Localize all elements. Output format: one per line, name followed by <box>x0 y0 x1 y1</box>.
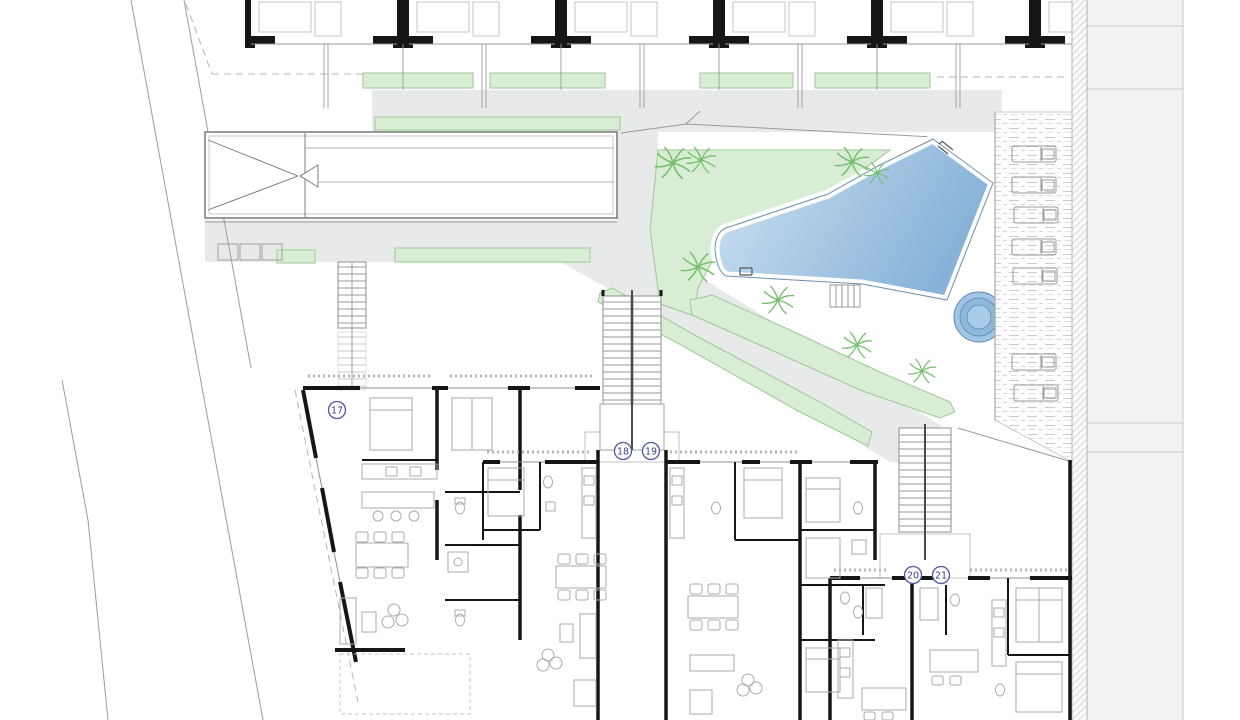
unit-17-furniture <box>340 398 492 644</box>
svg-text:18: 18 <box>617 446 629 457</box>
pool-steps <box>830 285 860 307</box>
svg-text:21: 21 <box>935 570 947 581</box>
site-plan-drawing: 1718192021 <box>0 0 1240 720</box>
unit-21-furniture <box>920 588 1062 712</box>
staircase-left <box>338 262 366 390</box>
svg-text:19: 19 <box>645 446 657 457</box>
palm-tree <box>842 332 872 358</box>
svg-text:20: 20 <box>907 570 919 581</box>
unit-label-21: 21 <box>933 567 950 584</box>
palm-tree <box>762 286 794 314</box>
unit-19-furniture <box>670 468 782 714</box>
unit-label-19: 19 <box>643 443 660 460</box>
palm-tree <box>908 359 936 383</box>
unit-label-17: 17 <box>329 402 346 419</box>
site-plan-canvas: 1718192021 <box>0 0 1240 720</box>
terrace-unit17 <box>340 654 470 714</box>
unit-label-18: 18 <box>615 443 632 460</box>
unit-label-20: 20 <box>905 567 922 584</box>
road-strip <box>1087 0 1183 720</box>
unit-20-furniture <box>838 588 906 720</box>
svg-text:17: 17 <box>331 405 343 416</box>
unit-18-furniture <box>488 468 606 706</box>
parking-strip <box>995 112 1072 462</box>
